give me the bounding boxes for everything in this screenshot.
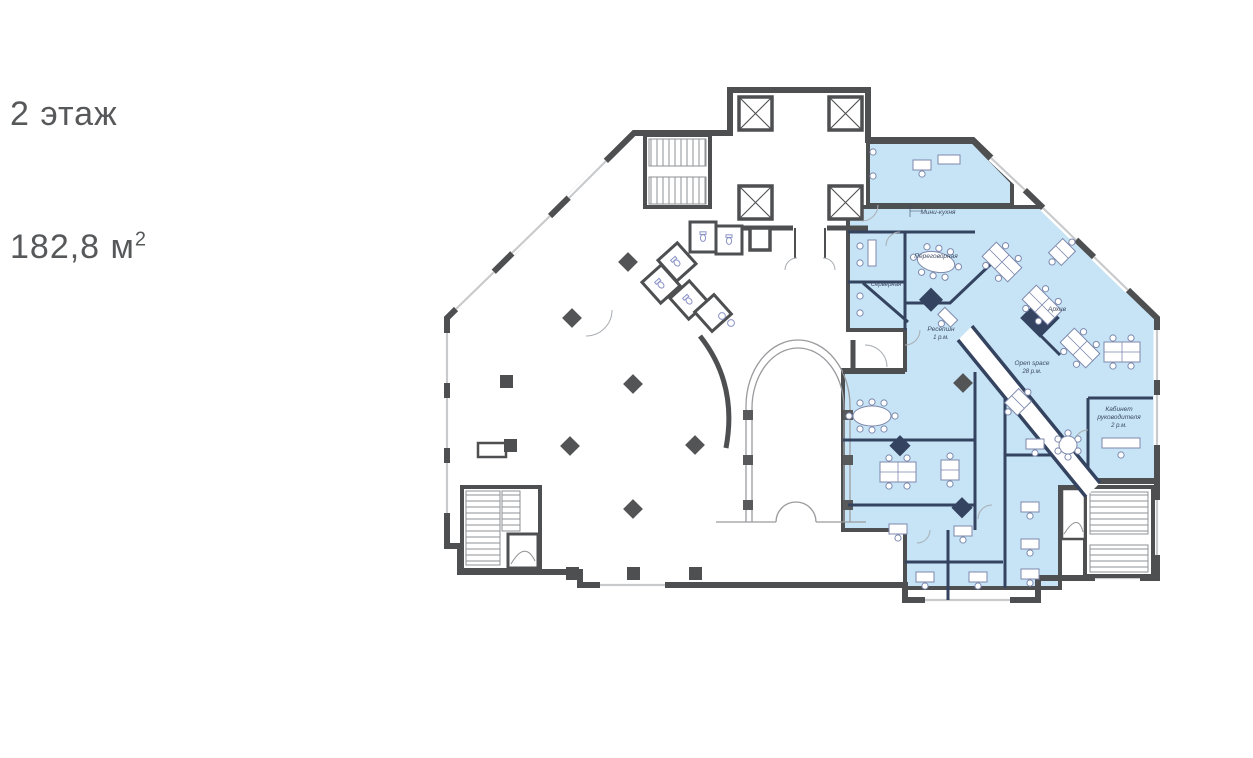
label-head-office-capacity: 2 р.м. [1110, 423, 1127, 429]
toilets [642, 222, 742, 331]
label-head-office-1: Кабинет [1105, 405, 1133, 413]
sideboard [478, 439, 517, 457]
label-meeting-room: Переговорная [914, 253, 958, 260]
label-server-room: Серверная [871, 282, 902, 288]
label-archive: Архив [1047, 306, 1067, 313]
highlight-top-room [868, 142, 1012, 205]
label-reception-capacity: 1 р.м. [933, 335, 949, 341]
page: 2 этаж 182,8 м2 [0, 0, 1253, 758]
label-head-office-2: руководителя [1096, 413, 1141, 421]
label-mini-kitchen: Мини-кухня [920, 209, 956, 216]
label-open-space-capacity: 28 р.м. [1021, 369, 1041, 375]
label-reception: Ресепшн [927, 326, 955, 333]
floor-plan: Мини-кухня Переговорная Серверная Ресепш… [0, 0, 1253, 758]
stairs-bottom-right [1062, 487, 1153, 576]
stairs-bottom-left [462, 487, 540, 570]
stairs-top-left [645, 135, 710, 207]
label-open-space: Open space [1014, 360, 1049, 367]
